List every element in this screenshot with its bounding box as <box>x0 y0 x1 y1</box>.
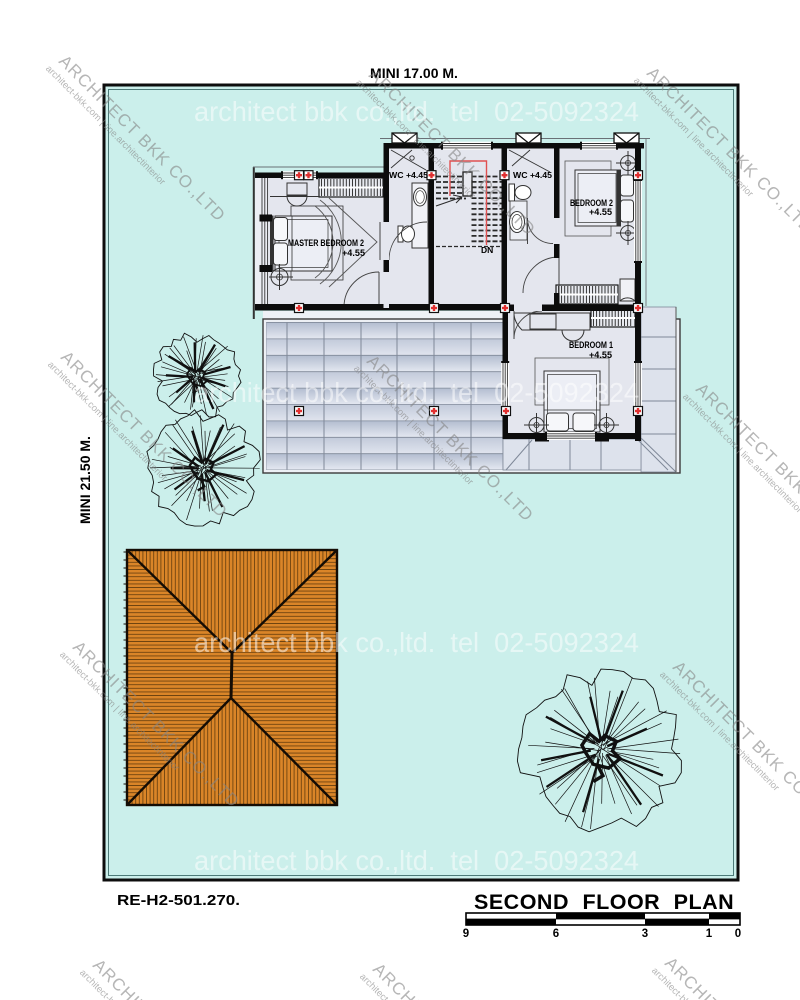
svg-text:architect bbk co.,ltd. tel 0: architect bbk co.,ltd. tel 02-5092324 <box>194 845 639 876</box>
svg-text:3: 3 <box>642 928 648 940</box>
svg-text:0: 0 <box>735 928 741 940</box>
svg-text:architect bbk co.,ltd. tel 0: architect bbk co.,ltd. tel 02-5092324 <box>194 377 639 408</box>
svg-text:6: 6 <box>553 928 559 940</box>
svg-text:SECOND FLOOR PLAN: SECOND FLOOR PLAN <box>474 890 734 914</box>
svg-text:+4.55: +4.55 <box>342 248 366 259</box>
svg-text:architect bbk co.,ltd. tel 0: architect bbk co.,ltd. tel 02-5092324 <box>194 627 639 658</box>
svg-text:architect bbk co.,ltd. tel 0: architect bbk co.,ltd. tel 02-5092324 <box>194 96 639 127</box>
svg-text:WC +4.45: WC +4.45 <box>513 170 552 180</box>
svg-text:WC +4.45: WC +4.45 <box>389 170 428 180</box>
svg-text:MINI 21.50 M.: MINI 21.50 M. <box>77 436 93 524</box>
svg-text:+4.55: +4.55 <box>589 207 613 218</box>
svg-text:1: 1 <box>706 928 713 940</box>
svg-text:RE-H2-501.270.: RE-H2-501.270. <box>117 892 240 909</box>
svg-text:+4.55: +4.55 <box>589 350 613 361</box>
svg-text:9: 9 <box>463 928 469 940</box>
svg-text:DN: DN <box>481 245 493 255</box>
